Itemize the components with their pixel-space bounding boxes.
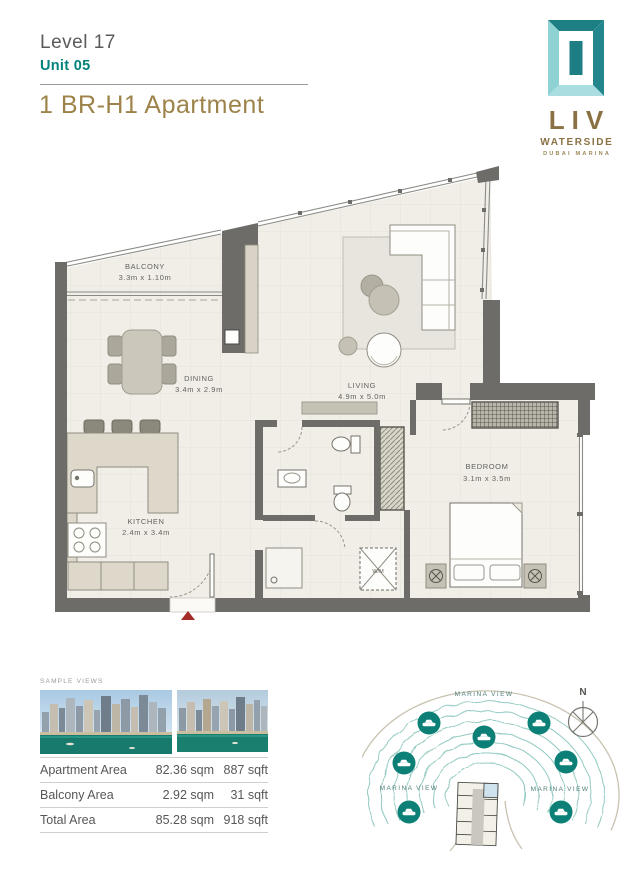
logo-frame-icon — [548, 20, 604, 96]
table-row: Balcony Area 2.92 sqm 31 sqft — [40, 782, 268, 807]
marina-view-label-left: MARINA VIEW — [380, 785, 439, 792]
area-row-label: Total Area — [40, 813, 152, 827]
area-row-sqm: 85.28 sqm — [152, 813, 214, 827]
living-label: LIVING — [348, 381, 376, 390]
highlighted-unit — [484, 783, 498, 797]
building-key-plate — [456, 782, 498, 845]
level-label: Level 17 — [40, 32, 116, 54]
marina-view-map: N MARINA VIEW MARINA VIEW MARINA VIEW — [362, 683, 634, 869]
area-row-sqft: 918 sqft — [214, 813, 268, 827]
kitchen-label: KITCHEN — [127, 517, 164, 526]
boat-badge-icon — [398, 801, 421, 824]
compass-north-label: N — [579, 687, 586, 698]
area-row-sqft: 887 sqft — [214, 763, 268, 777]
sample-photo-1 — [40, 690, 172, 754]
logo-sub-text: WATERSIDE — [540, 137, 614, 148]
kitchen-dims: 2.4m x 3.4m — [122, 528, 170, 537]
boat-badge-icon — [528, 712, 551, 735]
bedroom-label: BEDROOM — [466, 462, 509, 471]
logo-brand-text: LIV — [540, 107, 619, 133]
header-divider — [40, 84, 308, 85]
area-row-sqm: 2.92 sqm — [152, 788, 214, 802]
area-row-sqft: 31 sqft — [214, 788, 268, 802]
table-row: Apartment Area 82.36 sqm 887 sqft — [40, 757, 268, 782]
entrance-marker — [170, 598, 215, 620]
page-title: 1 BR-H1 Apartment — [39, 91, 264, 120]
boat-badge-icon — [418, 712, 441, 735]
dining-label: DINING — [184, 374, 214, 383]
boat-badge-icon — [473, 726, 496, 749]
table-row: Total Area 85.28 sqm 918 sqft — [40, 807, 268, 833]
area-table: Apartment Area 82.36 sqm 887 sqft Balcon… — [40, 757, 268, 833]
boat-badge-icon — [555, 751, 578, 774]
area-row-label: Apartment Area — [40, 763, 152, 777]
marina-view-label-top: MARINA VIEW — [455, 691, 514, 698]
area-row-label: Balcony Area — [40, 788, 152, 802]
sample-views-label: SAMPLE VIEWS — [40, 678, 104, 685]
wm-label: W/M — [372, 569, 384, 575]
boat-badge-icon — [550, 801, 573, 824]
sample-photo-2 — [177, 690, 268, 752]
brand-logo: LIV WATERSIDE DUBAI MARINA — [540, 20, 612, 157]
area-row-sqm: 82.36 sqm — [152, 763, 214, 777]
bedroom-dims: 3.1m x 3.5m — [463, 474, 511, 483]
boat-badge-icon — [393, 752, 416, 775]
balcony-label: BALCONY — [125, 262, 165, 271]
balcony-dims: 3.3m x 1.10m — [119, 273, 172, 282]
floorplan-drawing: BALCONY 3.3m x 1.10m DINING 3.4m x 2.9m … — [40, 150, 600, 650]
unit-label: Unit 05 — [40, 58, 90, 74]
dining-dims: 3.4m x 2.9m — [175, 385, 223, 394]
floorplan-page: { "header": { "level": "Level 17", "unit… — [0, 0, 637, 869]
living-dims: 4.9m x 5.0m — [338, 392, 386, 401]
marina-view-label-right: MARINA VIEW — [531, 786, 590, 793]
